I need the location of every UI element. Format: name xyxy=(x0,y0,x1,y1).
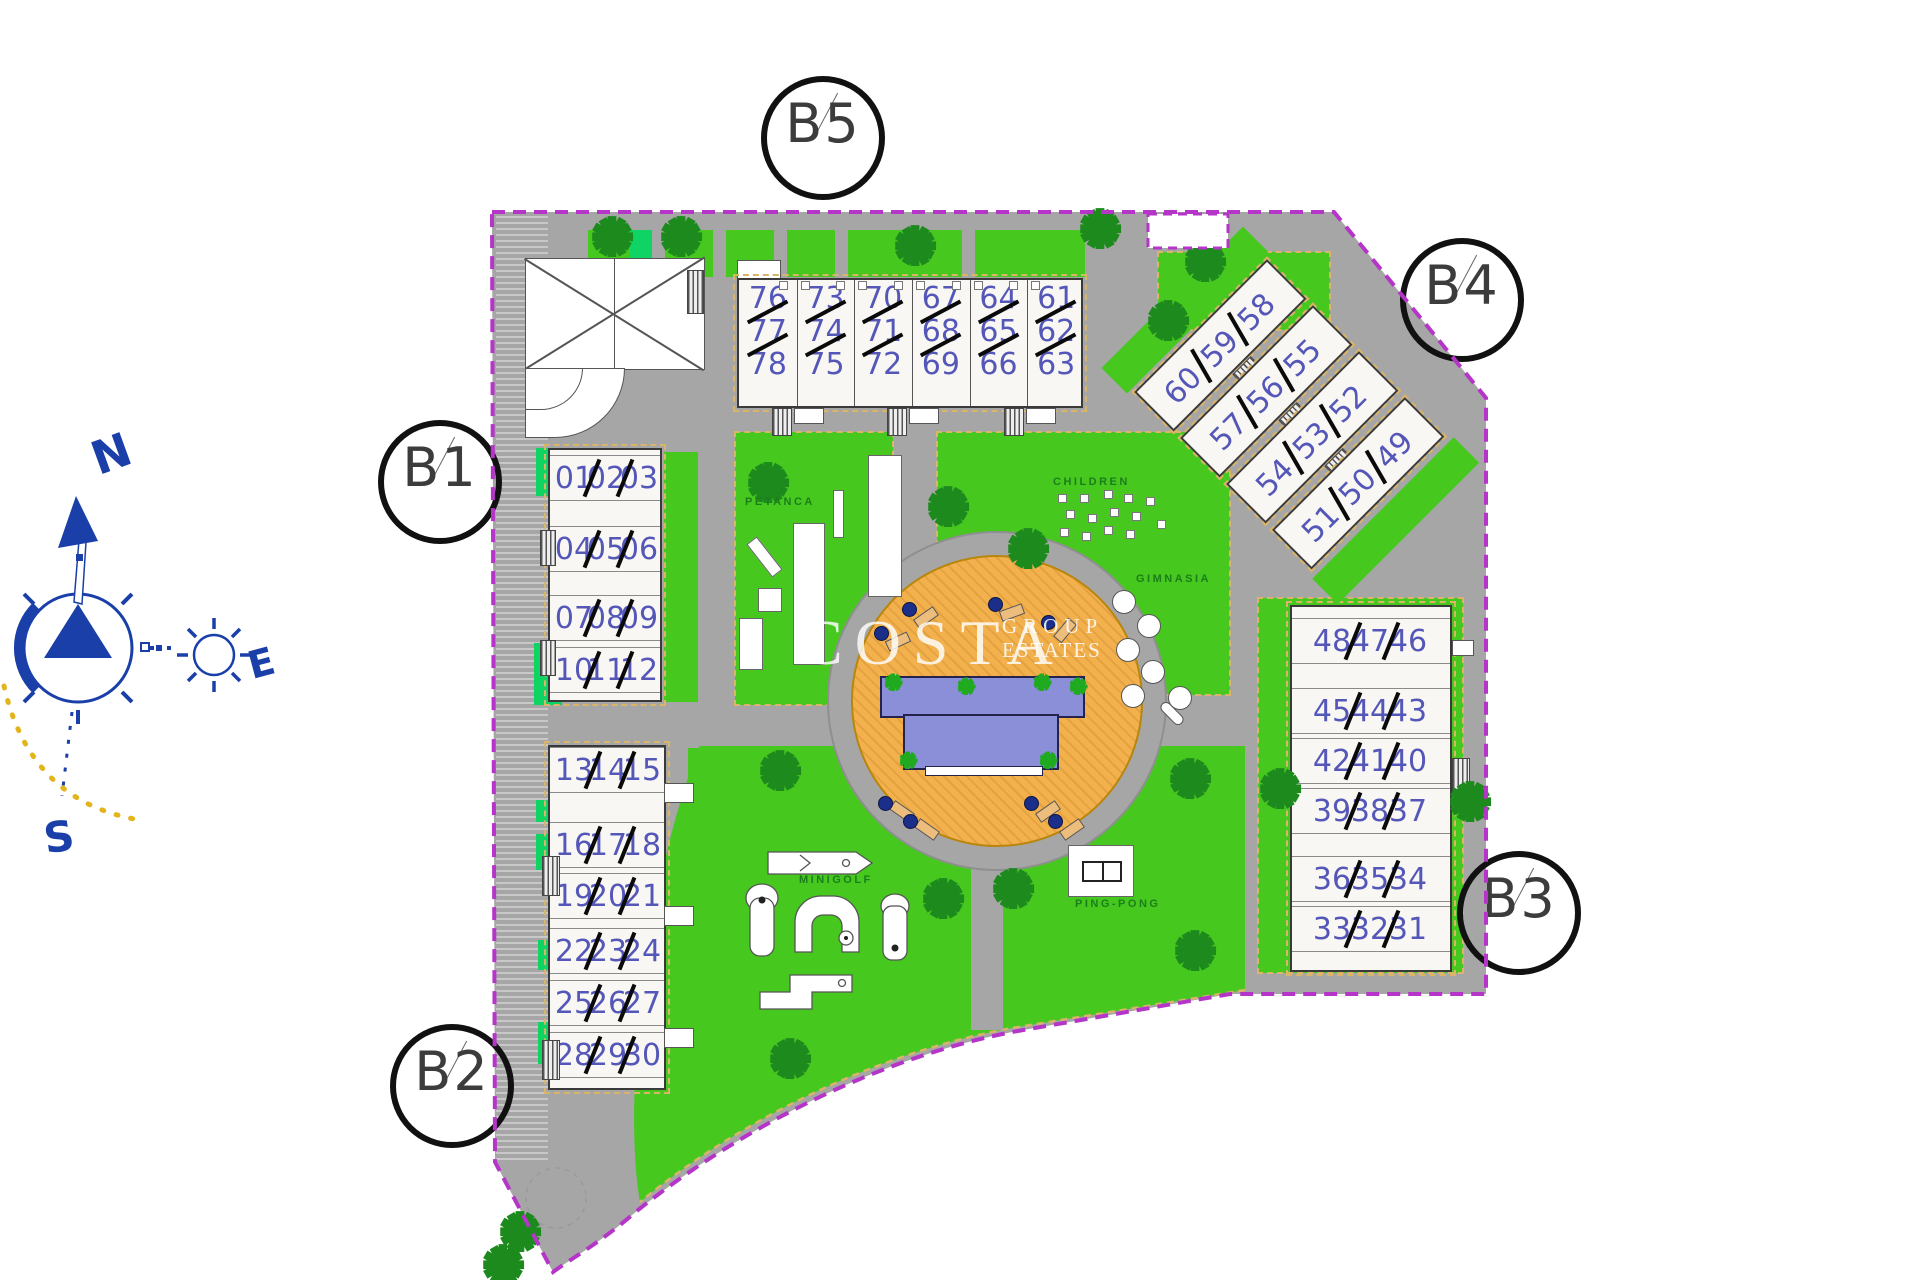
play-square-icon xyxy=(1088,514,1097,523)
compass-east-label: E xyxy=(243,639,279,688)
minigolf-label: MINIGOLF xyxy=(799,874,873,886)
play-square-icon xyxy=(1066,510,1075,519)
unit-divider xyxy=(854,280,855,406)
play-square-icon xyxy=(1146,497,1155,506)
petanca-lane xyxy=(868,455,902,597)
play-square-icon xyxy=(1157,520,1166,529)
unit-number: 78 xyxy=(749,350,787,380)
play-square-icon xyxy=(1110,508,1119,517)
tree-icon: ✱✱ xyxy=(1066,676,1090,700)
tree-icon: ✱✱ xyxy=(1177,235,1233,291)
block-label-b2: B2 xyxy=(390,1024,514,1148)
sun-path-arc xyxy=(4,686,140,820)
porch xyxy=(1026,408,1056,424)
tree-icon: ✱✱ xyxy=(920,480,976,536)
tree-icon: ✱✱ xyxy=(762,1032,818,1088)
unit-number: 72 xyxy=(864,350,902,380)
tree-icon: ✱✱ xyxy=(887,219,943,275)
balcony-icon xyxy=(801,281,810,290)
gym-circle-icon xyxy=(1137,614,1161,638)
play-square-icon xyxy=(1058,494,1067,503)
unit-number: 66 xyxy=(979,350,1017,380)
watermark-word3: ESTATES xyxy=(1002,638,1102,663)
stairs-icon xyxy=(687,270,704,314)
gym-circle-icon xyxy=(1116,638,1140,662)
tree-icon: ✱✱ xyxy=(475,1238,531,1280)
balcony-icon xyxy=(894,281,903,290)
gym-circle-icon xyxy=(1141,660,1165,684)
balcony-icon xyxy=(952,281,961,290)
gym-circle-icon xyxy=(1121,684,1145,708)
sun-icon xyxy=(177,618,251,692)
tree-icon: ✱✱ xyxy=(752,744,808,800)
building-b2: 131415161718192021222324252627282930 xyxy=(548,745,666,1090)
lawn-gap xyxy=(713,230,726,277)
play-square-icon xyxy=(1082,532,1091,541)
stairs-icon xyxy=(772,408,792,436)
ping-pong-area xyxy=(1068,845,1134,897)
site-plan: 767778737475707172676869646566616263 010… xyxy=(0,0,1920,1280)
play-square-icon xyxy=(1132,512,1141,521)
stairs-icon xyxy=(540,530,556,566)
gym-circle-icon xyxy=(1112,590,1136,614)
umbrella-icon xyxy=(1024,796,1039,811)
unit-divider xyxy=(912,280,913,406)
unit-divider xyxy=(970,280,971,406)
block-label-b4: B4 xyxy=(1400,238,1524,362)
pool-steps xyxy=(925,766,1043,776)
petanca-lane xyxy=(833,490,844,538)
tree-icon: ✱✱ xyxy=(1000,522,1056,578)
compass-rose-icon: N E S xyxy=(4,422,280,863)
balcony-icon xyxy=(1009,281,1018,290)
unit-number: 75 xyxy=(806,350,844,380)
balcony-icon xyxy=(836,281,845,290)
play-square-icon xyxy=(1104,490,1113,499)
balcony-icon xyxy=(779,281,788,290)
tree-icon: ✱✱ xyxy=(1036,750,1060,774)
stairs-icon xyxy=(542,856,560,896)
balcony-icon xyxy=(1031,281,1040,290)
balcony-icon xyxy=(858,281,867,290)
lawn-gap xyxy=(835,230,848,277)
building-b1: 010203040506070809101112 xyxy=(548,448,662,702)
tree-icon: ✱✱ xyxy=(1167,924,1223,980)
umbrella-icon xyxy=(878,796,893,811)
unit-divider xyxy=(797,280,798,406)
stairs-icon xyxy=(1004,408,1024,436)
unit-number: 69 xyxy=(922,350,960,380)
tree-icon: ✱✱ xyxy=(584,210,640,266)
block-label-b3: B3 xyxy=(1457,851,1581,975)
stairs-icon xyxy=(887,408,907,436)
play-square-icon xyxy=(1104,526,1113,535)
block-label-b1: B1 xyxy=(378,420,502,544)
block-label-b5: B5 xyxy=(761,76,885,200)
porch xyxy=(664,1028,694,1048)
petanca-pad xyxy=(758,588,782,612)
building-b5: 767778737475707172676869646566616263 xyxy=(737,278,1083,408)
watermark-word2: GROUP xyxy=(1002,614,1103,639)
gimnasia-label: GIMNASIA xyxy=(1136,573,1211,585)
b5-roof-tab xyxy=(737,260,781,280)
compass-north-label: N xyxy=(84,422,139,486)
tree-icon: ✱✱ xyxy=(985,862,1041,918)
tree-icon: ✱✱ xyxy=(1442,775,1498,831)
play-square-icon xyxy=(1126,530,1135,539)
building-b3: 484746454443424140393837363534333231 xyxy=(1290,605,1452,972)
stairs-icon xyxy=(540,640,556,676)
tree-icon: ✱✱ xyxy=(653,210,709,266)
stairs-icon xyxy=(542,1040,560,1080)
balcony-icon xyxy=(974,281,983,290)
petanca-pad xyxy=(739,618,763,670)
porch xyxy=(909,408,939,424)
tree-icon: ✱✱ xyxy=(1252,762,1308,818)
umbrella-icon xyxy=(1048,814,1063,829)
porch xyxy=(1452,640,1474,656)
compass-south-label: S xyxy=(41,811,78,864)
tree-icon: ✱✱ xyxy=(1162,752,1218,808)
unit-divider xyxy=(1027,280,1028,406)
tree-icon: ✱✱ xyxy=(1140,294,1196,350)
umbrella-icon xyxy=(903,814,918,829)
porch xyxy=(664,783,694,803)
petanca-label: PETANCA xyxy=(745,496,815,508)
tree-icon: ✱✱ xyxy=(896,750,920,774)
ping-pong-label: PING-PONG xyxy=(1075,898,1160,910)
lawn-area xyxy=(664,452,698,702)
play-square-icon xyxy=(1124,494,1133,503)
ping-pong-table-icon xyxy=(1082,861,1122,882)
porch xyxy=(794,408,824,424)
south-lawn-sand-edge xyxy=(640,990,1245,1202)
play-square-icon xyxy=(1080,494,1089,503)
tree-icon: ✱✱ xyxy=(915,872,971,928)
lawn-gap xyxy=(962,230,975,277)
tree-icon: ✱✱ xyxy=(1072,202,1128,258)
children-label: CHILDREN xyxy=(1053,476,1130,488)
porch xyxy=(664,906,694,926)
